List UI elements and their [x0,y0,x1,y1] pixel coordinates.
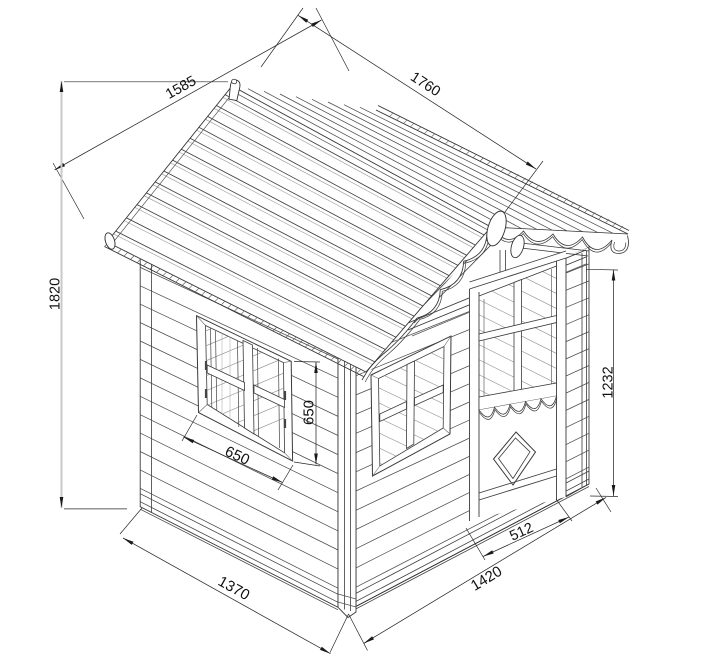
svg-text:650: 650 [301,400,318,425]
svg-text:1232: 1232 [601,366,617,398]
svg-text:1820: 1820 [48,278,64,310]
